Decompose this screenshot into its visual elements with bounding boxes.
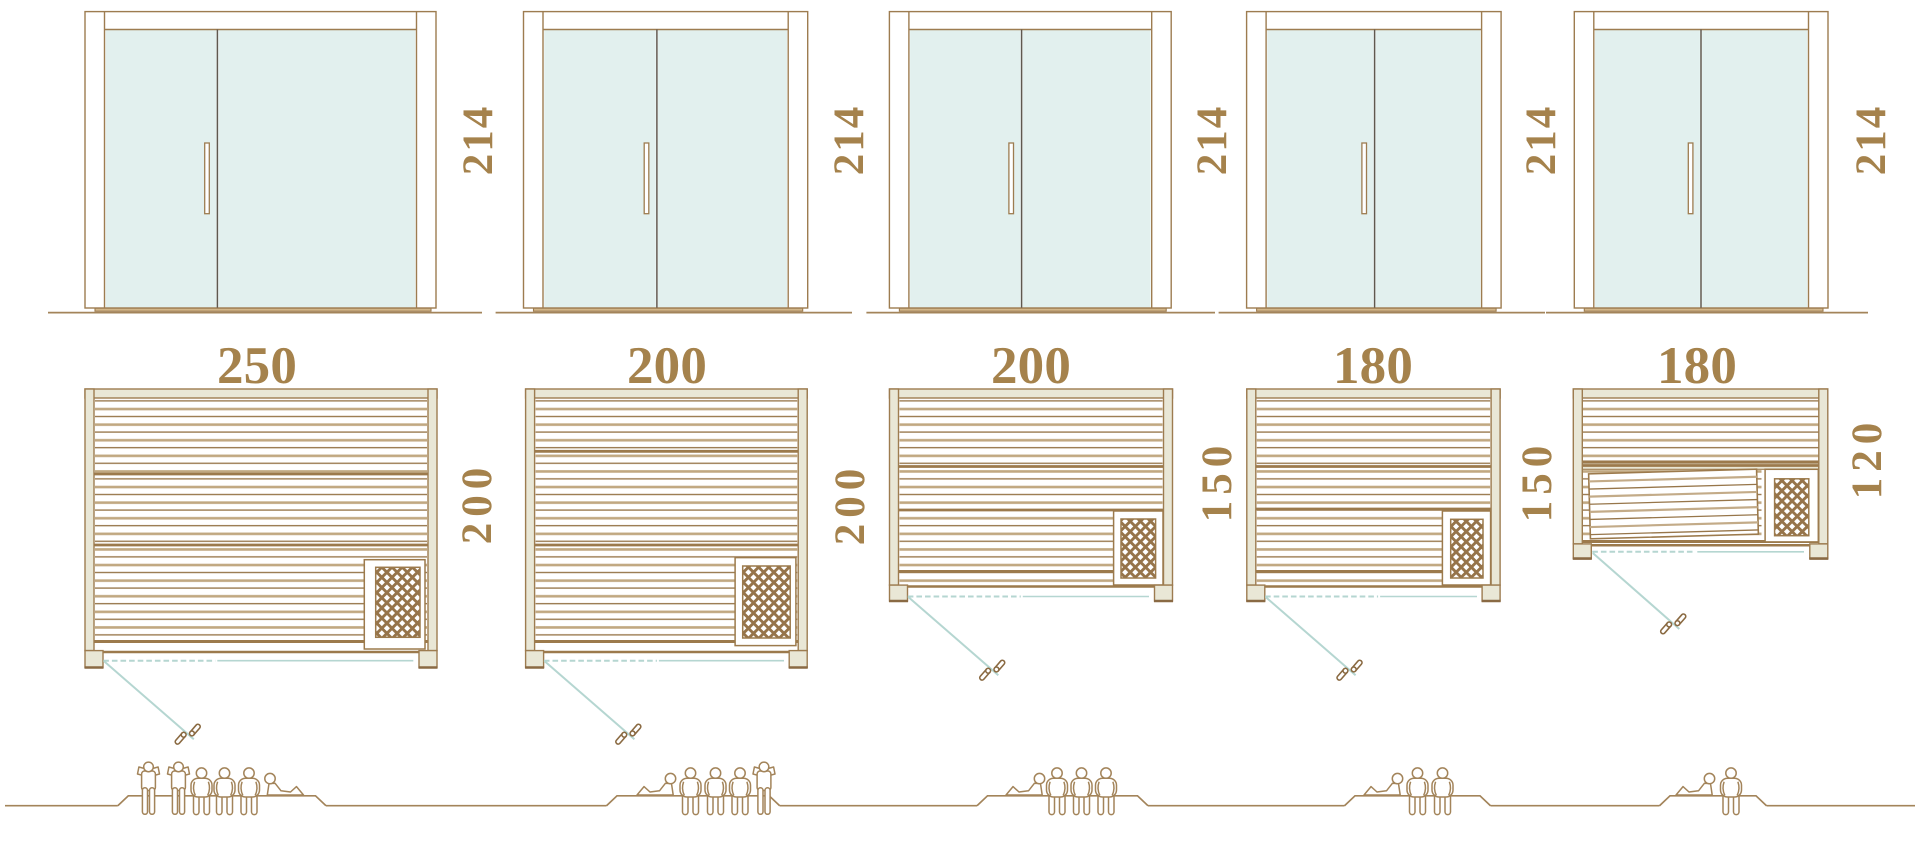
svg-text:200: 200 — [991, 337, 1071, 395]
svg-text:250: 250 — [217, 337, 297, 395]
svg-text:214: 214 — [826, 105, 873, 176]
svg-text:200: 200 — [454, 462, 501, 545]
svg-text:150: 150 — [1194, 440, 1241, 523]
svg-text:214: 214 — [1848, 105, 1895, 176]
svg-text:120: 120 — [1844, 417, 1891, 500]
svg-text:214: 214 — [455, 105, 502, 176]
svg-text:180: 180 — [1333, 337, 1413, 395]
svg-text:200: 200 — [827, 463, 874, 546]
svg-text:150: 150 — [1514, 440, 1561, 523]
svg-text:180: 180 — [1657, 337, 1737, 395]
svg-text:200: 200 — [627, 337, 707, 395]
svg-text:214: 214 — [1189, 105, 1236, 176]
svg-text:214: 214 — [1518, 105, 1565, 176]
